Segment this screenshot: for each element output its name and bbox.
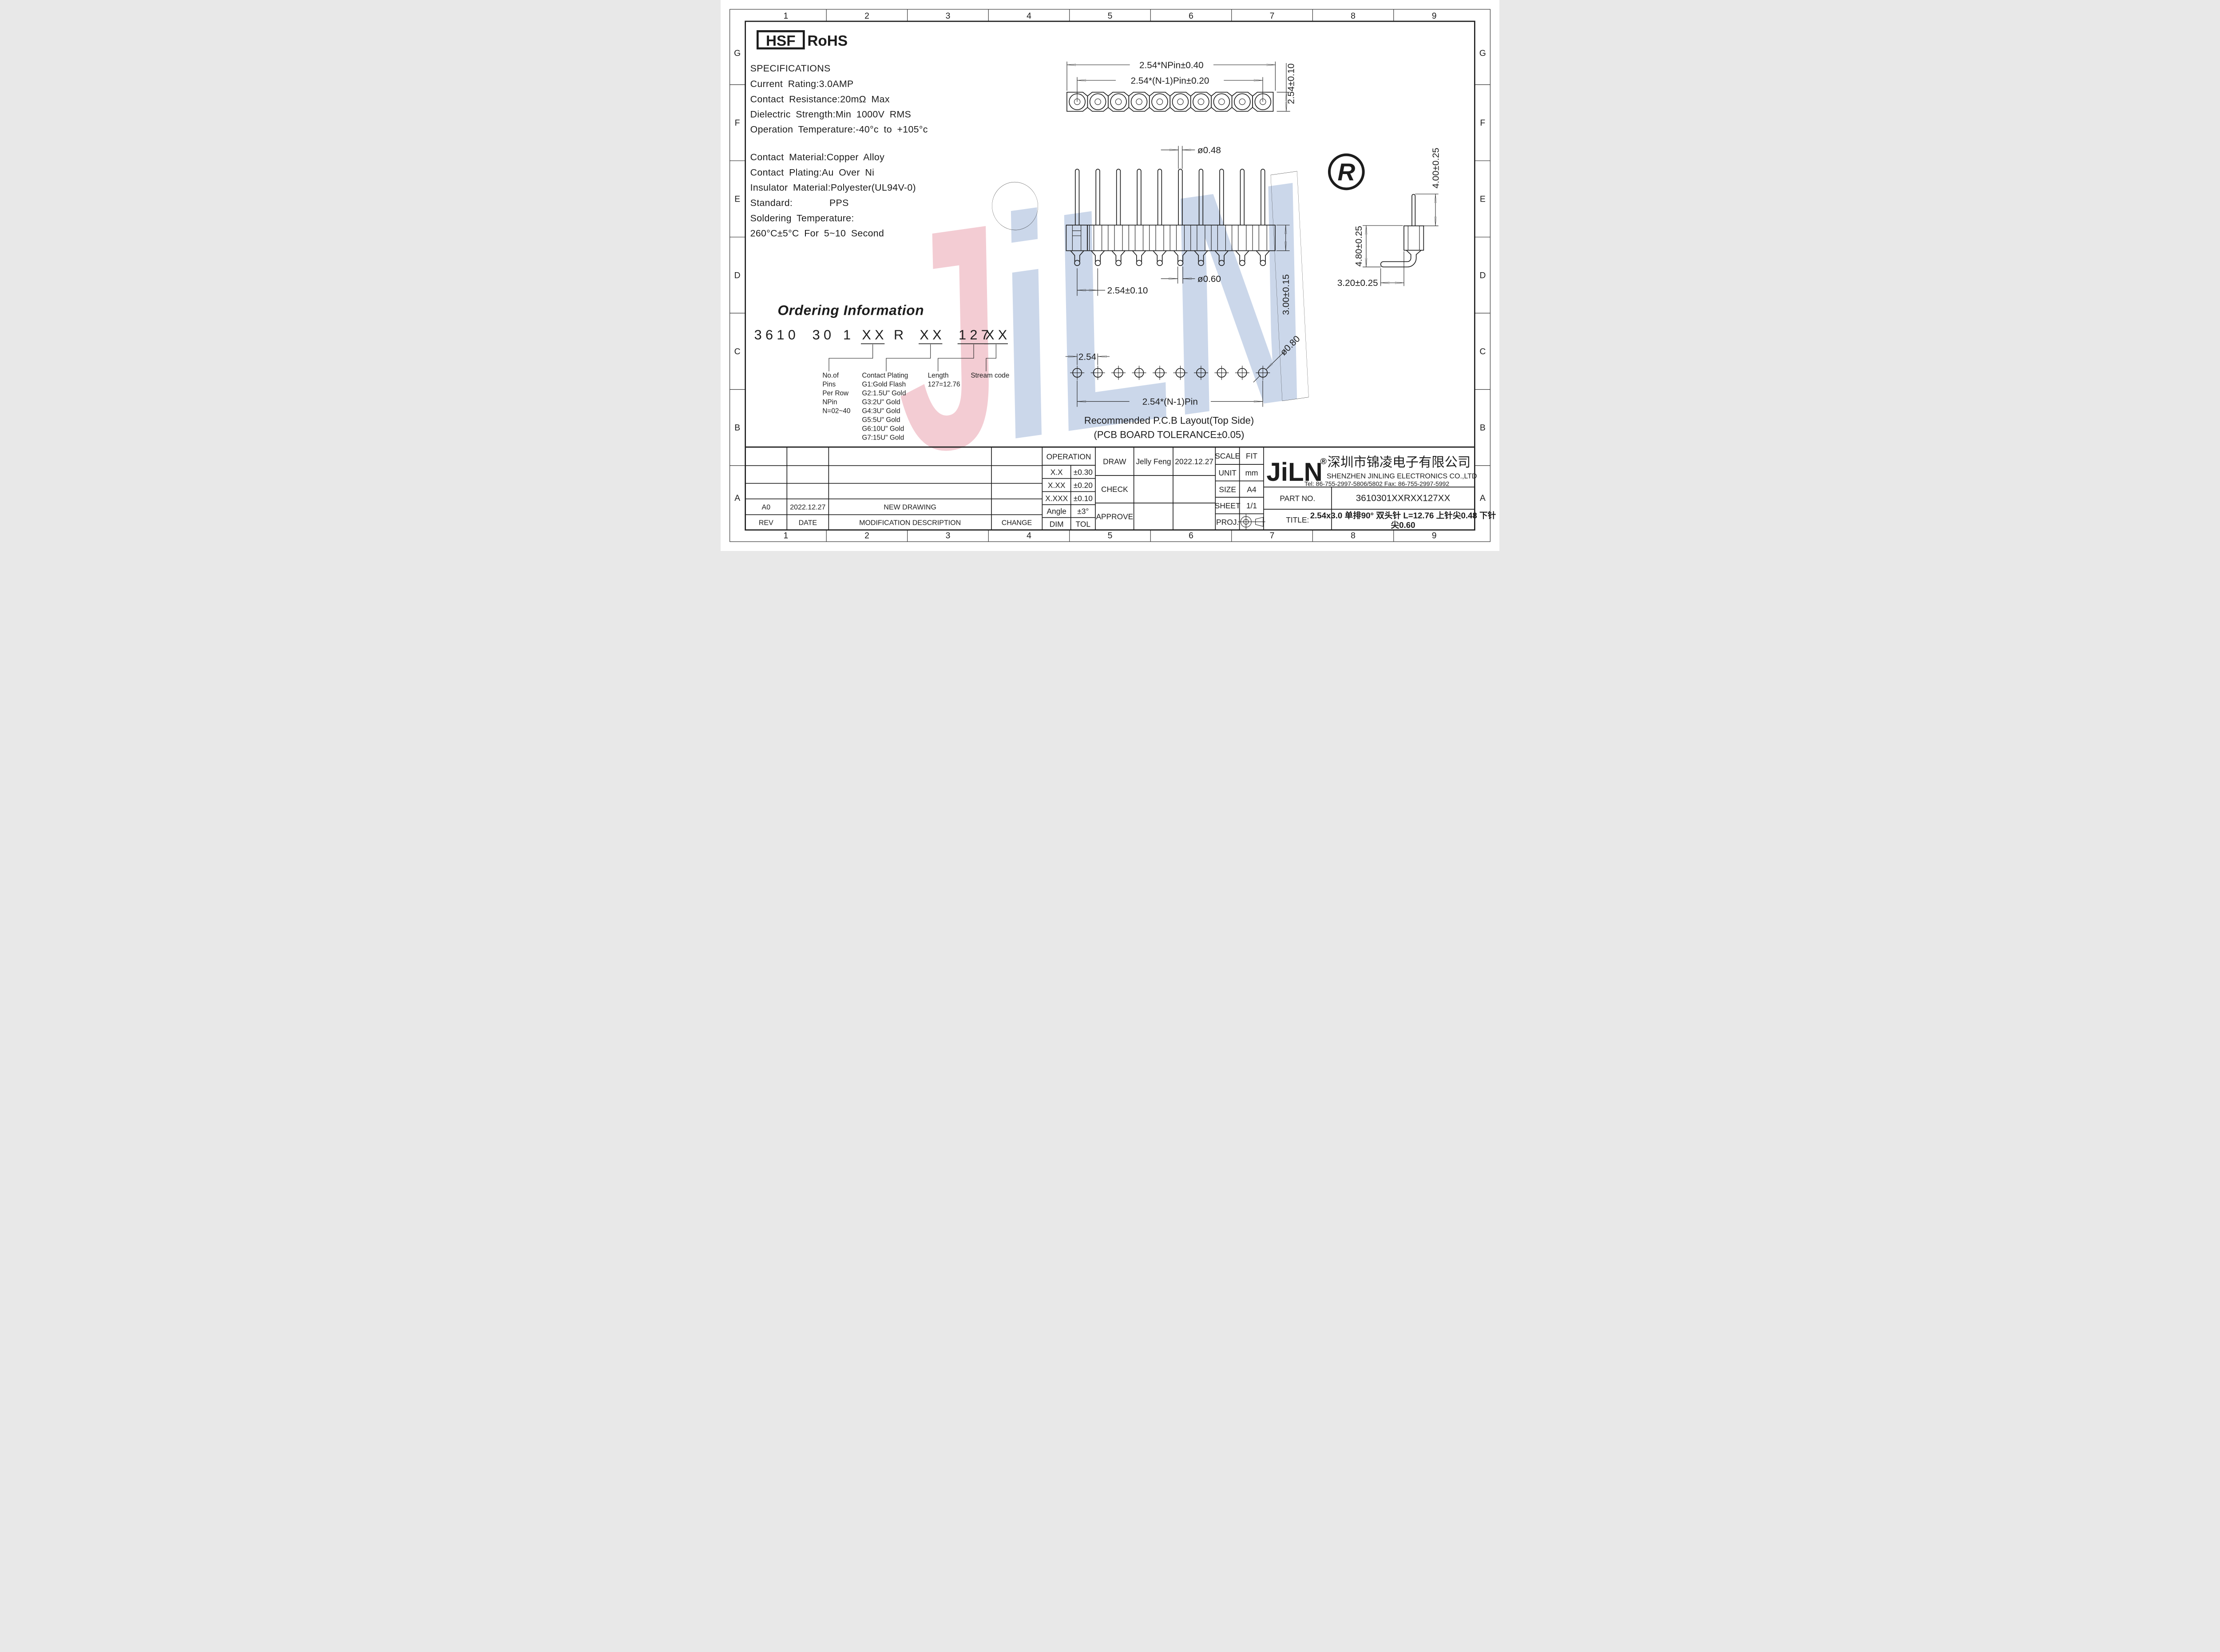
ann-pins-3: NPin xyxy=(822,398,837,406)
tv-contact-inner xyxy=(1177,99,1183,105)
tol-r5c2: TOL xyxy=(1076,519,1091,528)
tv-cell xyxy=(1232,92,1253,111)
tv-dim-inner: 2.54*(N-1)Pin±0.20 xyxy=(1131,75,1209,86)
tv-contact-outer xyxy=(1193,94,1209,110)
pcb-dim-pitch: 2.54 xyxy=(1078,352,1096,362)
projection-symbol-icon xyxy=(1238,514,1265,530)
unit-label: UNIT xyxy=(1218,468,1237,477)
grid-col-label-bottom: 8 xyxy=(1351,531,1356,541)
part-no-value: 3610301XXRXX127XX xyxy=(1356,493,1451,503)
tv-cell xyxy=(1191,92,1211,111)
sheet-label: SHEET xyxy=(1215,501,1241,510)
grid-row-label-left: G xyxy=(734,49,741,58)
tv-contact-inner xyxy=(1198,99,1204,105)
grid-col-label-bottom: 1 xyxy=(784,531,789,541)
grid-row-label-left: A xyxy=(734,494,740,503)
ann-plating-2: G2:1.5U" Gold xyxy=(862,389,906,397)
rev-a0: A0 xyxy=(762,504,771,511)
grid-col-label-bottom: 3 xyxy=(946,531,951,541)
tv-contact-inner xyxy=(1095,99,1101,105)
pcb-caption-1: Recommended P.C.B Layout(Top Side) xyxy=(1084,415,1254,426)
cad-canvas: JiLN R 112233445566778899GGFFEEDDCCBBAA … xyxy=(721,0,1499,551)
check-label: CHECK xyxy=(1101,485,1128,494)
tv-dim-height: 2.54±0.10 xyxy=(1286,63,1296,104)
ann-plating-5: G5:5U" Gold xyxy=(862,416,900,424)
tv-contact-outer xyxy=(1110,94,1126,110)
grid-col-label-top: 3 xyxy=(946,12,951,21)
grid-col-label-bottom: 7 xyxy=(1270,531,1275,541)
grid-col-label-bottom: 4 xyxy=(1027,531,1031,541)
tol-r3c1: X.XXX xyxy=(1045,494,1068,503)
tv-contact-inner xyxy=(1219,99,1225,105)
rohs-label: RoHS xyxy=(807,33,848,49)
unit-value: mm xyxy=(1245,468,1258,477)
tv-dim-overall: 2.54*NPin±0.40 xyxy=(1139,60,1204,70)
modification-header: MODIFICATION DESCRIPTION xyxy=(859,519,961,527)
ann-pins-0: No.of xyxy=(822,372,839,379)
tv-contact-inner xyxy=(1136,99,1142,105)
spec-soldering-1: Soldering Temperature: xyxy=(750,213,854,223)
code-stream: XX xyxy=(985,327,1011,342)
ann-plating-6: G6:10U" Gold xyxy=(862,425,904,432)
tol-r4c1: Angle xyxy=(1047,507,1066,516)
tv-contact-inner xyxy=(1157,99,1162,105)
ann-stream-0: Stream code xyxy=(971,372,1009,379)
sv-dim-top-pin: ø0.48 xyxy=(1197,145,1221,155)
ap-dim-vert: 4.80±0.25 xyxy=(1354,226,1364,267)
size-label: SIZE xyxy=(1219,485,1236,494)
grid-col-label-bottom: 9 xyxy=(1432,531,1437,541)
tol-r1c2: ±0.30 xyxy=(1074,467,1093,476)
ap-top-pin xyxy=(1412,194,1415,226)
part-no-label: PART NO. xyxy=(1280,494,1315,503)
grid-row-label-left: F xyxy=(735,119,740,128)
size-value: A4 xyxy=(1247,485,1257,494)
grid-col-label-top: 7 xyxy=(1270,12,1275,21)
tol-r3c2: ±0.10 xyxy=(1074,494,1093,503)
ap-dim-top: 4.00±0.25 xyxy=(1431,148,1441,189)
grid-col-label-top: 1 xyxy=(784,12,789,21)
ann-plating-1: G1:Gold Flash xyxy=(862,380,906,388)
ap-dim-horiz: 3.20±0.25 xyxy=(1337,278,1378,288)
code-plating: XX xyxy=(920,327,945,342)
pcb-dim-overall: 2.54*(N-1)Pin xyxy=(1142,397,1198,407)
tv-contact-outer xyxy=(1234,94,1250,110)
tv-contact-inner xyxy=(1239,99,1245,105)
sv-dim-bottom-pin: ø0.60 xyxy=(1197,274,1221,284)
title-value-line1: 2.54x3.0 单排90° 双头针 L=12.76 上针尖0.48 下针 xyxy=(1310,511,1496,520)
spec-current: Current Rating:3.0AMP xyxy=(750,79,854,89)
tv-cell xyxy=(1170,92,1190,111)
rev-a0-desc: NEW DRAWING xyxy=(884,504,936,511)
draw-label: DRAW xyxy=(1103,457,1126,466)
pcb-caption-2: (PCB BOARD TOLERANCE±0.05) xyxy=(1094,429,1245,440)
code-pins: XX xyxy=(862,327,888,342)
date-header: DATE xyxy=(799,519,817,527)
compliance-badges: HSF RoHS xyxy=(757,31,848,49)
ann-pins-2: Per Row xyxy=(822,389,849,397)
grid-row-label-right: F xyxy=(1480,119,1485,128)
annotation-stream: Stream code xyxy=(971,372,1009,379)
tv-contact-outer xyxy=(1172,94,1188,110)
ann-length-1: 127=12.76 xyxy=(928,380,960,388)
grid-col-label-bottom: 5 xyxy=(1108,531,1113,541)
grid-row-label-left: C xyxy=(734,347,741,357)
tol-r2c1: X.XX xyxy=(1048,481,1066,490)
spec-plating: Contact Plating:Au Over Ni xyxy=(750,167,875,178)
spec-operation: Operation Temperature:-40°c to +105°c xyxy=(750,124,928,135)
spec-standard-value: PPS xyxy=(829,198,849,208)
grid-row-label-right: G xyxy=(1479,49,1486,58)
tv-contact-outer xyxy=(1131,94,1147,110)
spec-material: Contact Material:Copper Alloy xyxy=(750,152,884,162)
company-name-en: SHENZHEN JINLING ELECTRONICS CO.,LTD xyxy=(1327,473,1477,480)
scale-label: SCALE xyxy=(1215,452,1240,460)
title-block: A0 2022.12.27 NEW DRAWING REV DATE MODIF… xyxy=(745,447,1496,530)
grid-col-label-bottom: 2 xyxy=(864,531,869,541)
grid-col-label-top: 5 xyxy=(1108,12,1113,21)
hsf-label: HSF xyxy=(766,33,796,49)
grid-col-label-top: 4 xyxy=(1027,12,1031,21)
drawing-sheet: JiLN R 112233445566778899GGFFEEDDCCBBAA … xyxy=(721,0,1499,551)
company-tel-fax: Tel: 86-755-2997-5806/5802 Fax: 86-755-2… xyxy=(1304,480,1449,487)
tv-cell xyxy=(1150,92,1170,111)
sheet-value: 1/1 xyxy=(1246,501,1257,510)
tv-cell xyxy=(1108,92,1129,111)
grid-row-label-right: D xyxy=(1479,271,1486,280)
rev-header: REV xyxy=(759,519,773,527)
draw-date: 2022.12.27 xyxy=(1175,457,1213,466)
title-value-line2: 尖0.60 xyxy=(1391,520,1415,530)
spec-resistance: Contact Resistance:20mΩ Max xyxy=(750,94,890,104)
company-logo-reg-icon: ® xyxy=(1320,457,1327,466)
spec-dielectric: Dielectric Strength:Min 1000V RMS xyxy=(750,109,911,119)
spec-title: SPECIFICATIONS xyxy=(750,63,831,74)
code-r: R xyxy=(894,327,907,342)
change-header: CHANGE xyxy=(1002,519,1032,527)
approve-label: APPROVE xyxy=(1096,512,1133,521)
tol-r5c1: DIM xyxy=(1050,519,1064,528)
tv-cell xyxy=(1129,92,1149,111)
tv-contact-outer xyxy=(1213,94,1229,110)
ap-body xyxy=(1404,226,1423,250)
ann-plating-7: G7:15U" Gold xyxy=(862,434,904,441)
ann-plating-4: G4:3U" Gold xyxy=(862,407,900,415)
ann-plating-0: Contact Plating xyxy=(862,372,908,379)
code-rows: 30 xyxy=(813,327,835,342)
company-name-cn: 深圳市锦凌电子有限公司 xyxy=(1328,455,1471,470)
scale-value: FIT xyxy=(1246,452,1257,460)
tv-contact-outer xyxy=(1090,94,1106,110)
grid-row-label-right: B xyxy=(1480,424,1486,433)
tv-cell xyxy=(1087,92,1108,111)
title-label: TITLE: xyxy=(1286,515,1309,524)
grid-row-label-right: A xyxy=(1480,494,1486,503)
code-series: 3610 xyxy=(754,327,800,342)
tv-contact-outer xyxy=(1152,94,1168,110)
draw-name: Jelly Feng xyxy=(1136,457,1171,466)
sv-dim-body: 3.00±0.15 xyxy=(1281,274,1291,315)
top-view-drawing: 2.54*NPin±0.40 2.54*(N-1)Pin±0.20 2.54±0… xyxy=(1067,60,1296,111)
ann-length-0: Length xyxy=(928,372,949,379)
grid-col-label-top: 9 xyxy=(1432,12,1437,21)
code-style: 1 xyxy=(843,327,854,342)
tol-r2c2: ±0.20 xyxy=(1074,481,1093,490)
ordering-title: Ordering Information xyxy=(777,302,924,318)
tv-cell xyxy=(1211,92,1232,111)
spec-insulator: Insulator Material:Polyester(UL94V-0) xyxy=(750,182,916,193)
ap-bent-leg xyxy=(1381,254,1416,267)
ann-pins-1: Pins xyxy=(822,380,836,388)
spec-standard-label: Standard: xyxy=(750,198,793,208)
grid-col-label-top: 6 xyxy=(1189,12,1193,21)
sv-dim-pitch: 2.54±0.10 xyxy=(1107,285,1148,296)
grid-row-label-right: E xyxy=(1480,195,1486,204)
tv-contact-inner xyxy=(1115,99,1121,105)
ann-pins-4: N=02~40 xyxy=(822,407,850,415)
grid-col-label-top: 2 xyxy=(864,12,869,21)
rev-a0-date: 2022.12.27 xyxy=(790,504,825,511)
tol-r1c1: X.X xyxy=(1051,467,1063,476)
registered-mark-watermark-r: R xyxy=(1337,158,1355,186)
ann-plating-3: G3:2U" Gold xyxy=(862,398,900,406)
grid-row-label-left: D xyxy=(734,271,741,280)
grid-row-label-left: B xyxy=(734,424,740,433)
spec-soldering-2: 260°C±5°C For 5~10 Second xyxy=(750,228,884,239)
grid-row-label-left: E xyxy=(734,195,740,204)
annotation-pins: No.of Pins Per Row NPin N=02~40 xyxy=(822,372,850,415)
tol-r4c2: ±3° xyxy=(1077,507,1089,516)
grid-col-label-top: 8 xyxy=(1351,12,1356,21)
grid-row-label-right: C xyxy=(1479,347,1486,357)
operation-header: OPERATION xyxy=(1047,452,1091,461)
top-view-strip xyxy=(1067,92,1273,111)
proj-label: PROJ. xyxy=(1216,518,1239,527)
grid-col-label-bottom: 6 xyxy=(1189,531,1193,541)
